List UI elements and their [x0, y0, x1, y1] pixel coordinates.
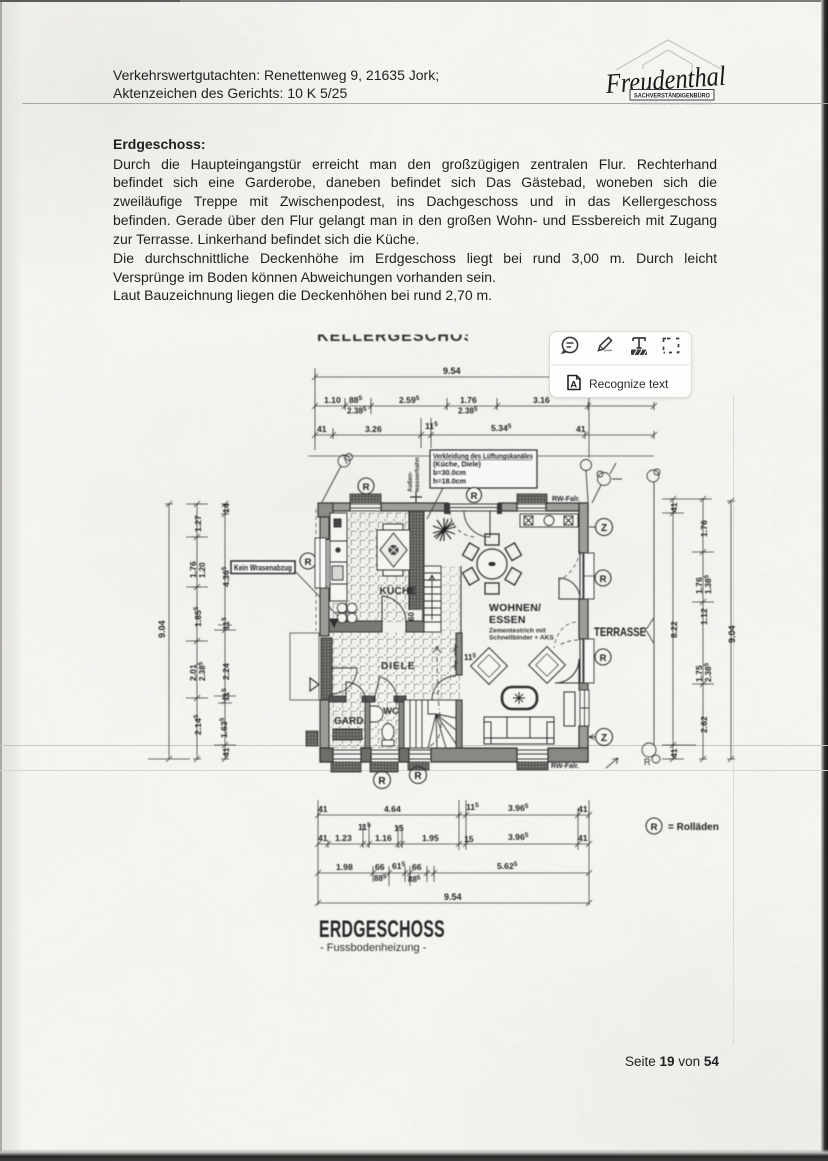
svg-text:1.98: 1.98	[336, 862, 353, 872]
svg-text:9.04: 9.04	[157, 620, 167, 638]
svg-text:Z: Z	[601, 523, 607, 534]
svg-text:R: R	[644, 757, 651, 767]
svg-text:1.95: 1.95	[422, 833, 439, 843]
svg-text:WC: WC	[383, 706, 399, 717]
svg-text:DIELE: DIELE	[381, 661, 415, 672]
svg-text:R: R	[600, 574, 607, 585]
svg-text:1.635: 1.635	[219, 717, 229, 738]
svg-text:115: 115	[466, 802, 479, 812]
svg-text:8.22: 8.22	[669, 621, 679, 638]
svg-text:9.04: 9.04	[727, 625, 737, 643]
svg-text:60: 60	[407, 612, 416, 621]
svg-text:1.27: 1.27	[193, 515, 203, 532]
svg-text:WOHNEN/: WOHNEN/	[489, 602, 541, 614]
svg-text:9.54: 9.54	[443, 366, 461, 376]
svg-text:2.385: 2.385	[458, 406, 478, 416]
svg-text:3.965: 3.965	[508, 803, 529, 813]
svg-text:41: 41	[578, 833, 588, 843]
svg-text:4.64: 4.64	[384, 804, 401, 814]
svg-text:R: R	[414, 771, 422, 782]
svg-text:TERRASSE: TERRASSE	[594, 627, 646, 639]
svg-text:- Fussbodenheizung -: - Fussbodenheizung -	[320, 942, 427, 954]
svg-text:Schnellbinder + AKS: Schnellbinder + AKS	[489, 635, 554, 642]
svg-text:2.01: 2.01	[188, 664, 198, 681]
svg-text:2.385: 2.385	[347, 406, 367, 416]
svg-text:885: 885	[408, 875, 421, 885]
svg-text:Recognize text: Recognize text	[589, 377, 669, 391]
svg-text:R: R	[651, 822, 658, 833]
svg-text:1.76: 1.76	[699, 520, 709, 537]
svg-text:41: 41	[221, 747, 231, 757]
svg-text:1.75: 1.75	[694, 665, 704, 682]
svg-text:115: 115	[221, 688, 231, 701]
svg-text:1.12: 1.12	[699, 608, 709, 625]
svg-text:2.385: 2.385	[198, 661, 208, 681]
svg-text:115: 115	[464, 653, 476, 663]
svg-text:41: 41	[578, 804, 588, 814]
svg-text:615: 615	[392, 861, 406, 871]
svg-text:GARD.: GARD.	[334, 716, 366, 727]
svg-text:KELLERGESCHOSS: KELLERGESCHOSS	[317, 328, 487, 345]
svg-text:1.385: 1.385	[704, 574, 714, 594]
svg-text:41: 41	[318, 833, 328, 843]
svg-text:2.595: 2.595	[399, 395, 420, 405]
svg-text:41: 41	[669, 748, 679, 758]
svg-text:R: R	[363, 482, 370, 493]
svg-text:= Rolläden: = Rolläden	[668, 822, 719, 833]
svg-text:A: A	[570, 380, 577, 391]
svg-text:Zementestrich mit: Zementestrich mit	[489, 628, 547, 635]
svg-text:115: 115	[221, 617, 231, 630]
svg-text:1.16: 1.16	[375, 833, 392, 843]
svg-text:2.62: 2.62	[699, 716, 709, 733]
svg-text:Kein Wrasenabzug: Kein Wrasenabzug	[234, 564, 292, 573]
svg-text:ERDGESCHOSS: ERDGESCHOSS	[319, 916, 445, 943]
svg-text:R: R	[305, 557, 312, 568]
svg-text:3.16: 3.16	[533, 395, 550, 405]
svg-text:h=18.0cm: h=18.0cm	[433, 477, 466, 486]
svg-text:41: 41	[669, 502, 679, 512]
svg-text:2.145: 2.145	[193, 714, 203, 735]
svg-text:1.76: 1.76	[694, 577, 704, 594]
svg-text:1.10: 1.10	[324, 395, 341, 405]
svg-text:41: 41	[318, 804, 328, 814]
svg-text:1.76: 1.76	[460, 395, 477, 405]
svg-text:15: 15	[464, 834, 474, 844]
svg-text:885: 885	[374, 874, 387, 884]
svg-text:9.54: 9.54	[444, 892, 462, 902]
svg-text:5.345: 5.345	[491, 423, 512, 433]
svg-text:3.26: 3.26	[365, 424, 382, 434]
svg-text:1.23: 1.23	[335, 833, 352, 843]
svg-text:66: 66	[375, 862, 385, 872]
svg-text:4.365: 4.365	[221, 566, 231, 587]
svg-text:14: 14	[221, 503, 231, 513]
svg-text:Außen-: Außen-	[408, 471, 414, 492]
svg-text:115: 115	[425, 421, 438, 431]
svg-text:41: 41	[576, 424, 586, 434]
svg-text:ESSEN: ESSEN	[489, 614, 526, 626]
svg-text:66: 66	[412, 862, 422, 872]
svg-text:2.385: 2.385	[704, 662, 714, 682]
svg-text:41: 41	[317, 424, 327, 434]
svg-text:RW-Falr.: RW-Falr.	[551, 763, 579, 770]
svg-text:1.20: 1.20	[198, 562, 207, 578]
svg-text:R: R	[378, 776, 386, 787]
svg-text:1.855: 1.855	[193, 606, 203, 627]
svg-text:wasserhahn: wasserhahn	[415, 457, 421, 493]
svg-text:RW-Falr.: RW-Falr.	[552, 496, 580, 503]
svg-text:5.625: 5.625	[497, 861, 518, 871]
svg-text:885: 885	[349, 395, 363, 405]
svg-text:2.24: 2.24	[221, 663, 231, 680]
svg-text:KÜCHE: KÜCHE	[379, 584, 416, 597]
svg-text:Z: Z	[601, 733, 607, 744]
svg-text:R: R	[600, 653, 607, 664]
svg-text:1.76: 1.76	[188, 561, 198, 578]
svg-text:R: R	[471, 491, 478, 502]
svg-text:15: 15	[394, 823, 404, 833]
svg-text:3.965: 3.965	[508, 832, 529, 842]
